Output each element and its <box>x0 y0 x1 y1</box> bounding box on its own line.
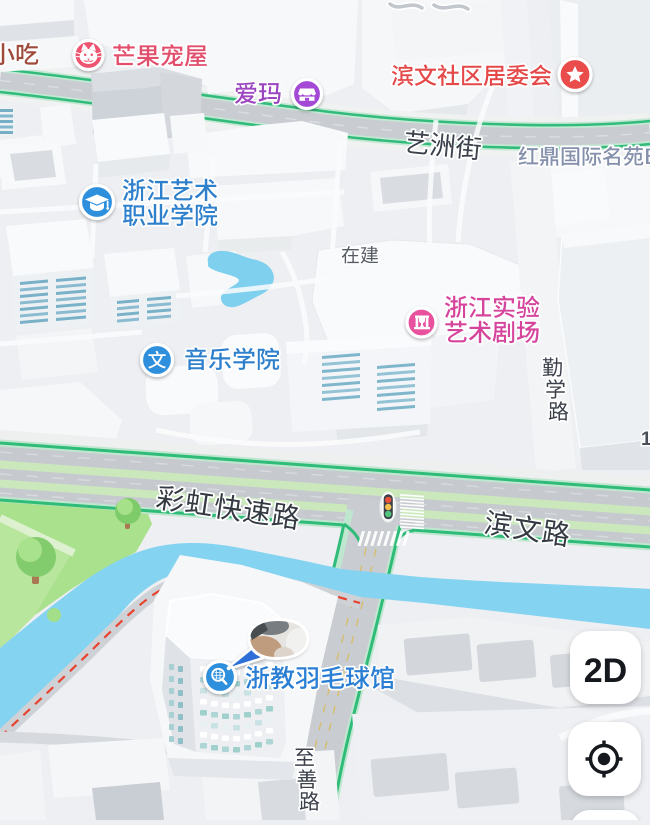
svg-text:2D: 2D <box>584 652 627 690</box>
svg-text:1: 1 <box>641 429 650 450</box>
